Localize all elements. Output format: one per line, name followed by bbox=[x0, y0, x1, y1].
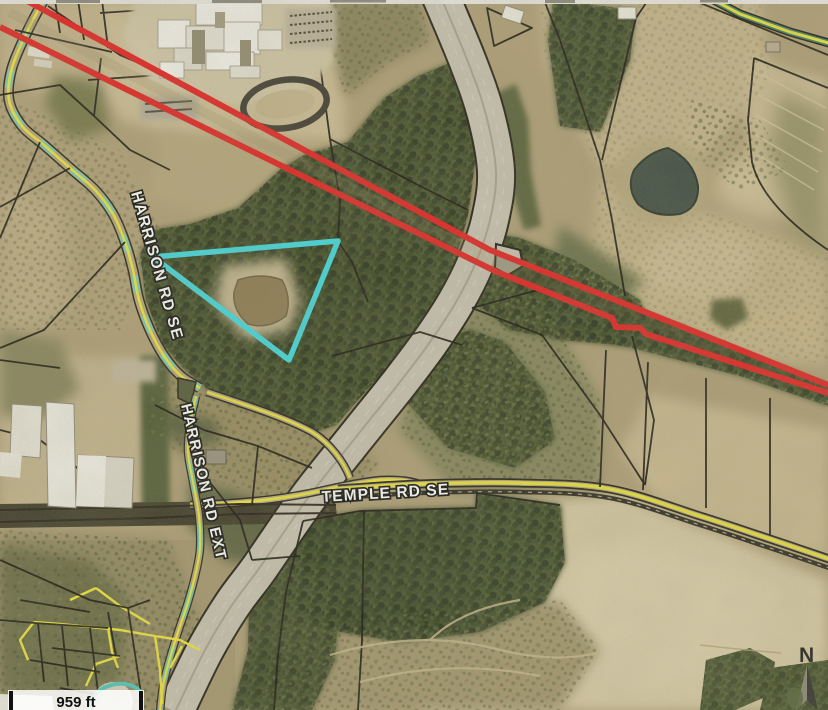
svg-text:959 ft: 959 ft bbox=[56, 694, 95, 710]
